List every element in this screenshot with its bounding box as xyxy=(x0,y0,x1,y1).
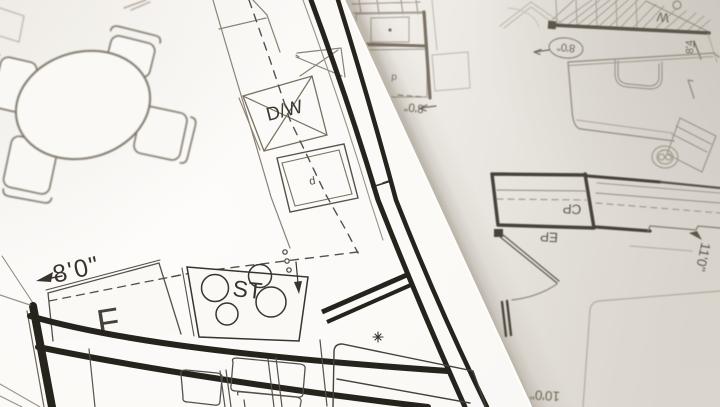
svg-text:8'0": 8'0" xyxy=(556,40,575,54)
svg-text:ST: ST xyxy=(231,275,263,304)
svg-text:CP: CP xyxy=(562,201,582,217)
